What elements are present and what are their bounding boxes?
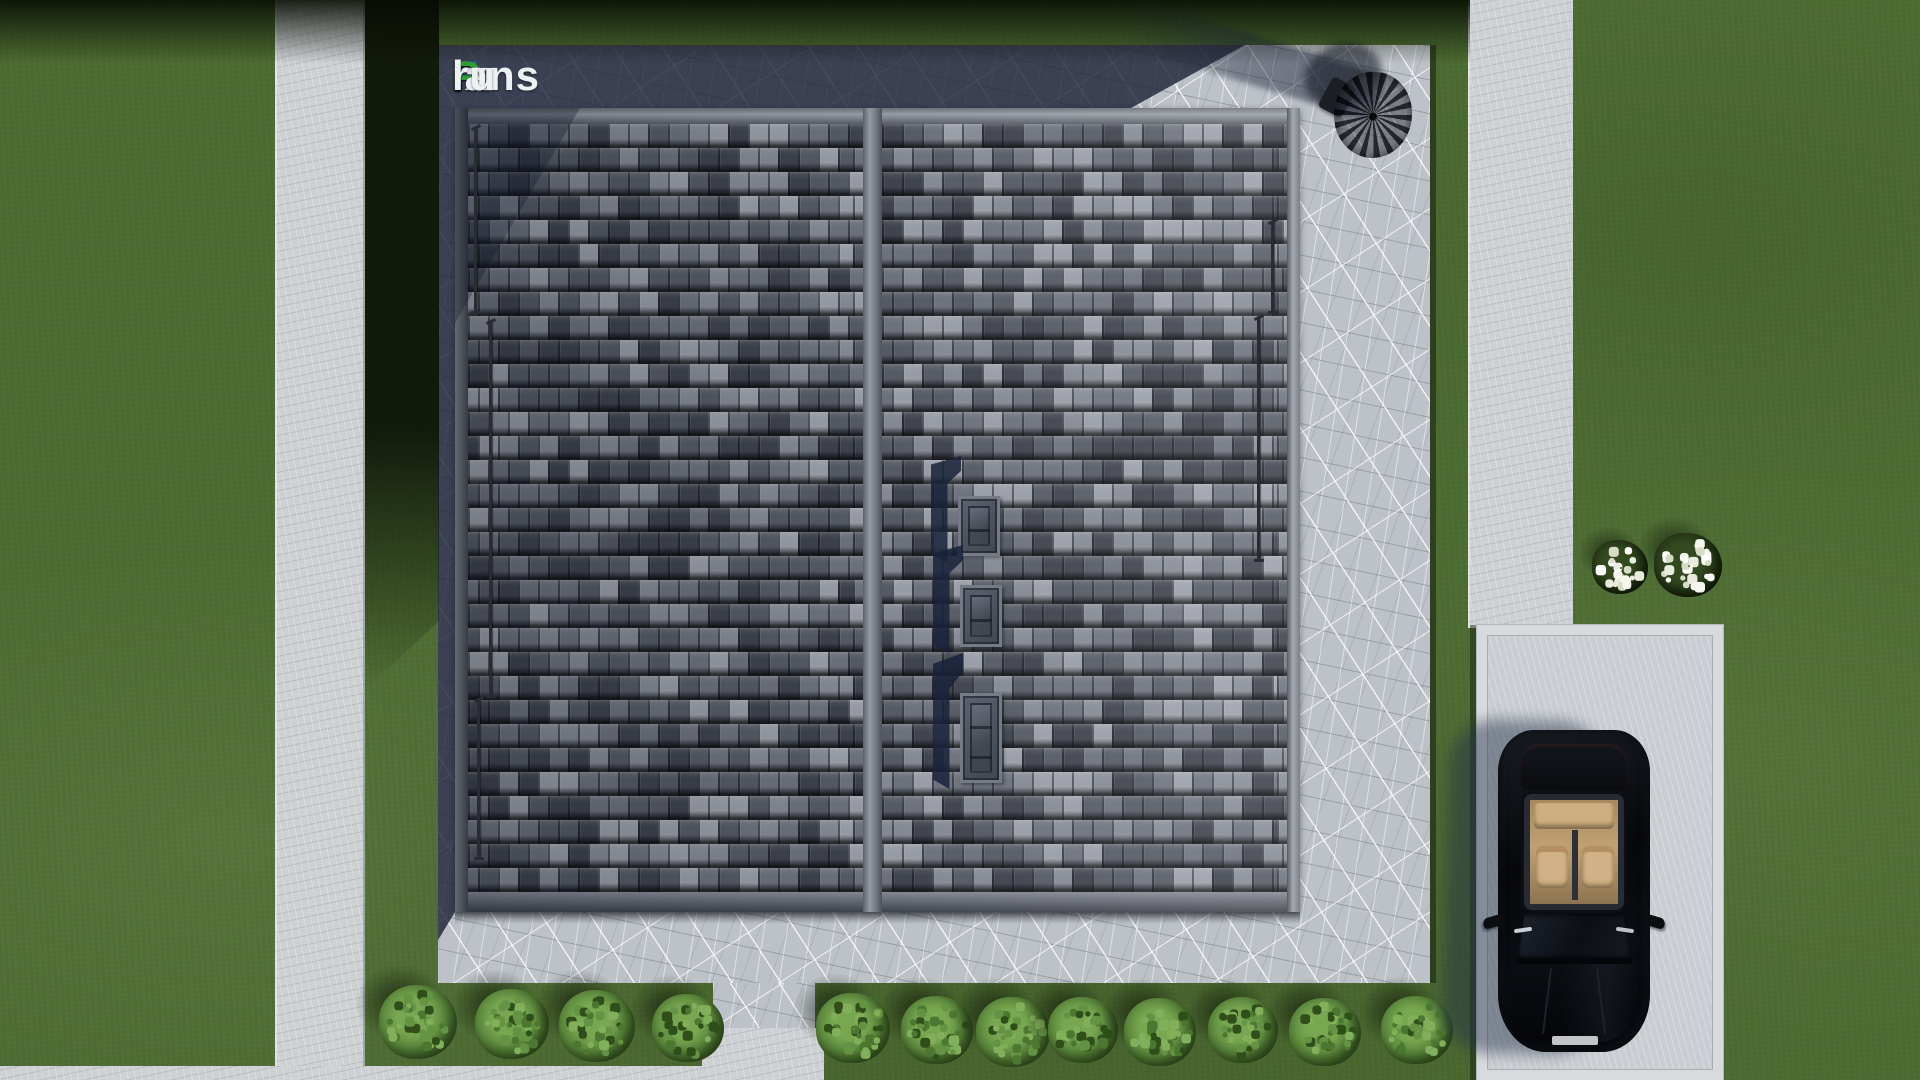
umbrella-canopy [1334,72,1412,158]
roof-rod [1271,222,1274,312]
logo-letter: ru [452,52,496,100]
roof-window [958,496,1000,556]
walkway-bottom [0,1066,822,1080]
roof-window-bar [970,726,992,729]
car-license-plate [1552,1036,1598,1045]
car-interior [1530,800,1618,904]
roof-window-bar [968,529,990,532]
roof-extras [455,108,1300,912]
walkway-right [1468,0,1573,628]
patio-edge-shadow [1430,45,1436,983]
car-front-seat-right [1582,846,1614,888]
roof-window-pane [968,506,990,546]
roof-window [960,693,1002,783]
patio-umbrella [1318,50,1418,165]
car-hood [1510,964,1638,1042]
car-rear-seat [1534,803,1614,829]
roof-rod [489,322,492,696]
eave-shadow [455,912,1300,924]
walkway-center-stamped [713,983,815,1033]
car-front-seat-left [1536,846,1568,888]
roof-rod [477,700,480,858]
roof [455,108,1300,912]
aerial-render-stage: FixPlans.ru [0,0,1920,1080]
car-sunroof-glass [1524,794,1624,910]
roof-window-shadow [931,456,961,562]
roof-window-shadow [933,653,963,789]
car-rear-window [1520,744,1628,790]
roof-rod [1257,318,1260,560]
roof-window [960,585,1002,647]
roof-window-bar [970,619,992,622]
roof-window-pane [970,595,992,637]
black-car [1498,730,1650,1052]
car-windshield [1518,914,1630,958]
house-shadow-on-grass [365,0,439,690]
roof-window-pane [970,703,992,773]
walkway-left [275,0,365,1080]
car-center-console [1572,830,1578,900]
walkway-center-smooth [702,1028,824,1080]
roof-window-shadow [933,545,963,653]
roof-rod [474,128,477,312]
roof-window-bar [970,756,992,759]
